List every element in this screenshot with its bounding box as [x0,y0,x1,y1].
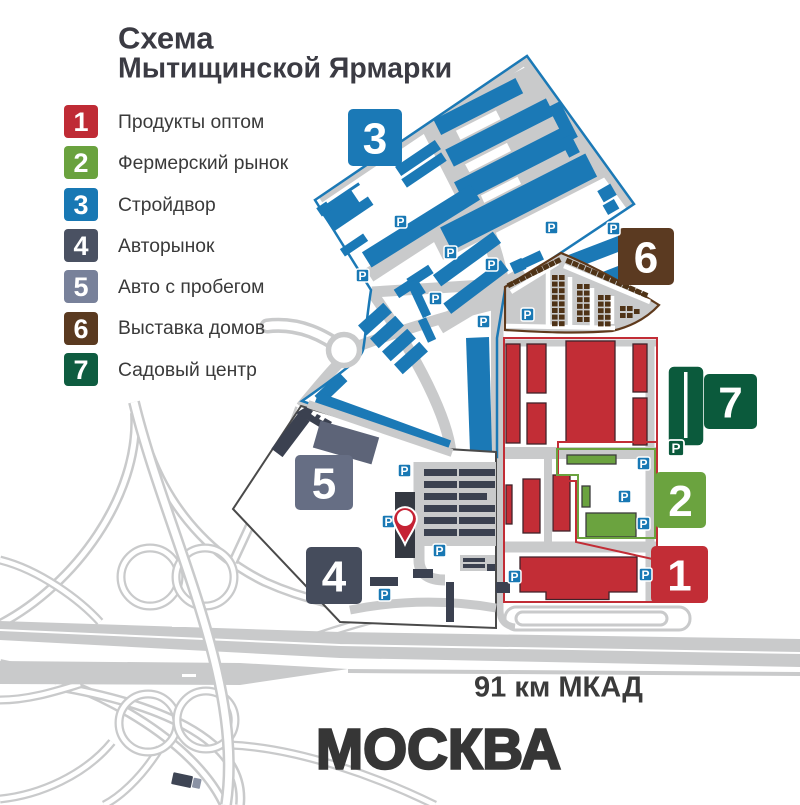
svg-text:5: 5 [312,460,336,509]
svg-text:P: P [380,588,388,602]
svg-text:P: P [358,269,366,283]
svg-text:7: 7 [718,379,742,428]
svg-text:P: P [639,457,647,471]
svg-text:P: P [487,258,495,272]
svg-text:P: P [547,221,555,235]
svg-text:P: P [431,292,439,306]
svg-text:4: 4 [73,231,88,261]
svg-text:P: P [639,517,647,531]
svg-text:P: P [510,570,518,584]
svg-text:3: 3 [73,190,88,220]
svg-text:6: 6 [73,314,88,344]
svg-text:3: 3 [363,115,387,164]
svg-text:P: P [671,441,680,456]
svg-text:P: P [523,308,531,322]
svg-text:P: P [609,222,617,236]
svg-text:1: 1 [667,552,691,601]
svg-text:2: 2 [668,477,692,526]
svg-text:7: 7 [73,355,88,385]
svg-text:1: 1 [73,107,88,137]
svg-text:Фермерский рынок: Фермерский рынок [118,153,289,174]
svg-text:P: P [479,315,487,329]
svg-text:P: P [641,568,649,582]
svg-text:Мытищинской Ярмарки: Мытищинской Ярмарки [118,53,452,85]
svg-text:P: P [446,246,454,260]
svg-text:Авто с пробегом: Авто с пробегом [118,277,264,298]
svg-text:Продукты оптом: Продукты оптом [118,112,264,133]
svg-text:Схема: Схема [118,21,214,56]
svg-text:P: P [400,464,408,478]
svg-text:91 км МКАД: 91 км МКАД [474,672,643,704]
svg-text:P: P [435,544,443,558]
svg-text:Садовый центр: Садовый центр [118,360,257,381]
svg-text:P: P [396,215,404,229]
svg-text:2: 2 [73,148,88,178]
svg-text:6: 6 [634,234,658,283]
svg-text:Стройдвор: Стройдвор [118,195,216,216]
svg-text:P: P [384,515,392,529]
svg-text:P: P [620,490,628,504]
svg-text:5: 5 [73,272,88,302]
svg-text:Авторынок: Авторынок [118,236,215,257]
svg-text:4: 4 [322,553,347,602]
svg-text:МОСКВА: МОСКВА [316,718,561,781]
svg-text:Выставка домов: Выставка домов [118,318,265,339]
